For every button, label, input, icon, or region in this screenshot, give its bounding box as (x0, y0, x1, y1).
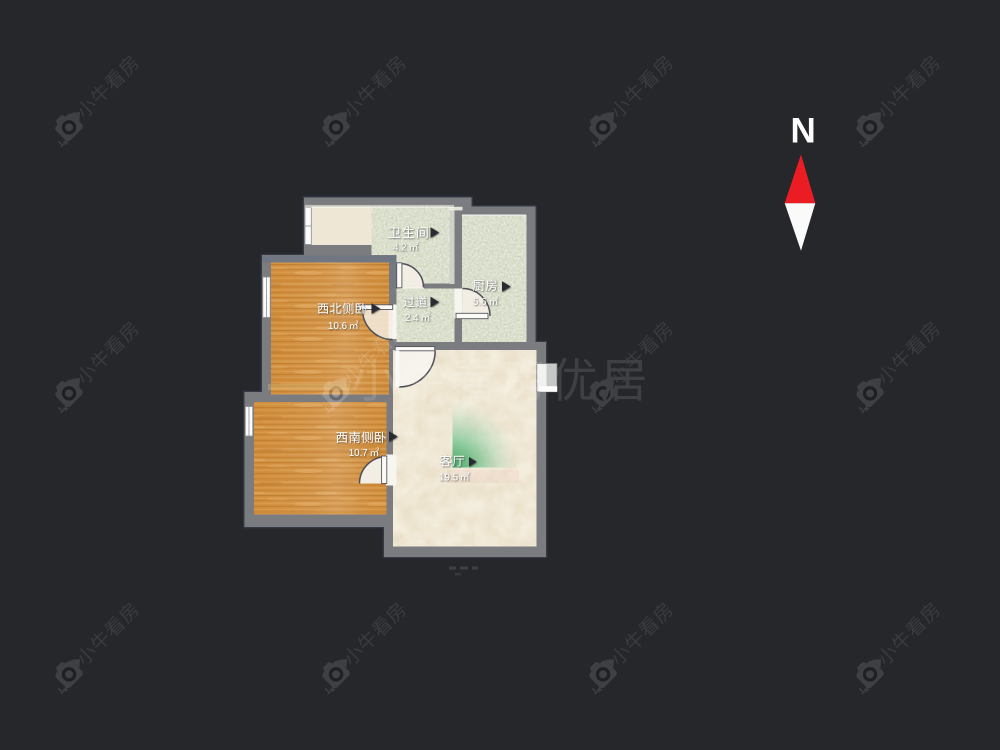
svg-text:19.5: 19.5 (439, 473, 459, 484)
svg-text:10.7: 10.7 (349, 448, 368, 459)
svg-text:10.6: 10.6 (328, 321, 348, 332)
svg-text:2.4: 2.4 (405, 313, 419, 324)
svg-text:5.6: 5.6 (473, 297, 487, 308)
svg-text:4.2: 4.2 (393, 243, 407, 254)
svg-text:N: N (791, 112, 816, 151)
